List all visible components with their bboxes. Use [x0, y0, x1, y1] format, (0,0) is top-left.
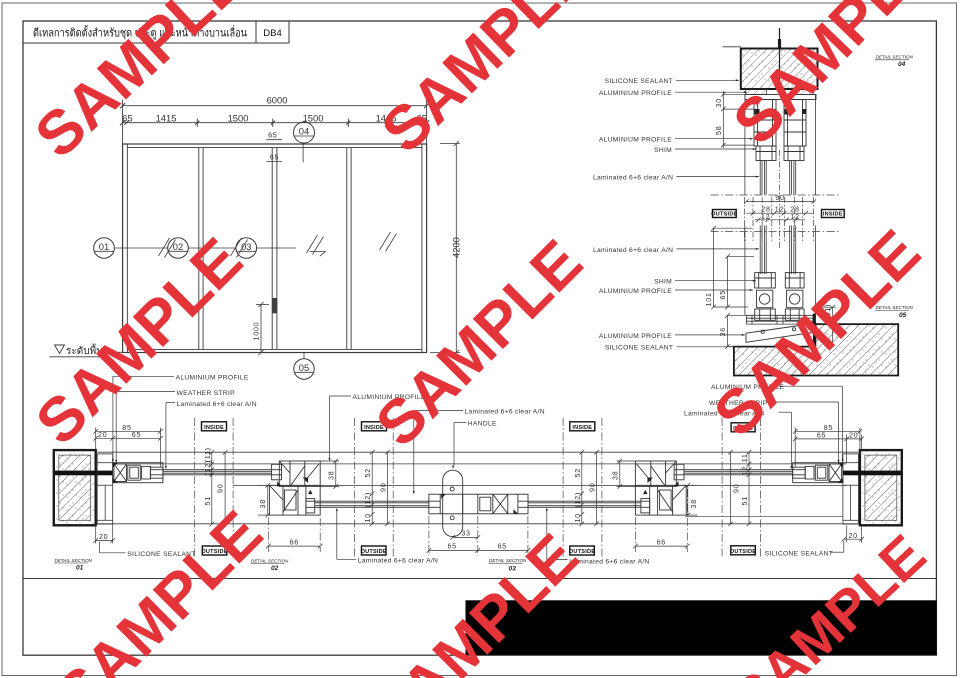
svg-text:65: 65 — [268, 130, 277, 139]
svg-text:Laminated 6+6 clear A/N: Laminated 6+6 clear A/N — [177, 401, 257, 408]
svg-text:05: 05 — [299, 362, 309, 373]
svg-text:1000: 1000 — [252, 322, 261, 341]
svg-text:65: 65 — [817, 431, 826, 440]
svg-text:ALUMINIUM PROFILE: ALUMINIUM PROFILE — [599, 90, 672, 97]
svg-text:65: 65 — [718, 290, 727, 299]
svg-text:20: 20 — [98, 430, 107, 439]
svg-text:(12): (12) — [363, 492, 372, 508]
svg-text:38: 38 — [689, 499, 698, 508]
svg-text:01: 01 — [99, 241, 109, 252]
svg-text:52: 52 — [363, 468, 372, 477]
svg-text:(12): (12) — [203, 460, 212, 476]
svg-text:65: 65 — [132, 430, 141, 439]
svg-text:DB4: DB4 — [263, 28, 281, 39]
svg-text:20: 20 — [99, 532, 108, 541]
svg-text:DETAIL SECTION: DETAIL SECTION — [55, 558, 93, 563]
svg-text:OUTSIDE: OUTSIDE — [730, 549, 756, 555]
svg-text:90: 90 — [775, 193, 784, 202]
svg-text:85: 85 — [122, 423, 131, 432]
svg-text:65: 65 — [447, 542, 456, 551]
svg-text:33: 33 — [461, 529, 470, 538]
svg-text:101: 101 — [704, 292, 713, 306]
svg-text:51: 51 — [203, 496, 212, 505]
svg-text:66: 66 — [657, 538, 666, 547]
svg-text:12: 12 — [761, 212, 770, 221]
svg-text:10: 10 — [573, 513, 582, 522]
svg-text:90: 90 — [732, 484, 741, 493]
svg-text:ALUMINIUM PROFILE: ALUMINIUM PROFILE — [599, 288, 672, 295]
svg-text:INSIDE: INSIDE — [823, 212, 843, 218]
svg-text:Laminated 6+6 clear A/N: Laminated 6+6 clear A/N — [358, 557, 438, 564]
svg-text:10: 10 — [363, 513, 372, 522]
svg-text:04: 04 — [898, 61, 906, 68]
svg-text:20: 20 — [848, 531, 857, 540]
svg-text:INSIDE: INSIDE — [204, 425, 224, 431]
svg-text:SILICONE SEALANT: SILICONE SEALANT — [605, 78, 673, 85]
svg-text:12: 12 — [790, 212, 799, 221]
svg-text:12: 12 — [775, 205, 784, 214]
svg-text:90: 90 — [216, 484, 225, 493]
svg-text:ALUMINIUM PROFILE: ALUMINIUM PROFILE — [599, 333, 672, 340]
svg-text:SILICONE SEALANT: SILICONE SEALANT — [765, 551, 833, 558]
svg-text:HANDLE: HANDLE — [468, 420, 497, 427]
svg-text:05: 05 — [899, 312, 907, 319]
svg-text:04: 04 — [299, 126, 309, 137]
svg-text:52: 52 — [573, 468, 582, 477]
svg-text:DETAIL SECTION: DETAIL SECTION — [876, 55, 914, 60]
svg-text:SILICONE SEALANT: SILICONE SEALANT — [605, 345, 673, 352]
svg-text:38: 38 — [326, 471, 335, 480]
svg-text:1500: 1500 — [228, 113, 249, 124]
svg-text:03: 03 — [241, 241, 251, 252]
svg-text:SHIM: SHIM — [654, 279, 672, 286]
svg-text:30: 30 — [714, 98, 723, 107]
svg-text:12: 12 — [740, 466, 749, 475]
svg-text:02: 02 — [271, 565, 279, 572]
svg-text:66: 66 — [290, 538, 299, 547]
svg-text:20: 20 — [849, 431, 858, 440]
svg-text:(12): (12) — [573, 492, 582, 508]
svg-text:1415: 1415 — [156, 113, 177, 124]
svg-text:ALUMINIUM PROFILE: ALUMINIUM PROFILE — [176, 374, 249, 381]
svg-text:Laminated 6+6 clear A/N: Laminated 6+6 clear A/N — [593, 247, 673, 254]
svg-text:90: 90 — [379, 483, 388, 492]
svg-text:65: 65 — [270, 153, 279, 162]
svg-text:4200: 4200 — [451, 237, 462, 258]
svg-text:OUTSIDE: OUTSIDE — [711, 212, 737, 218]
svg-text:WEATHER STRIP: WEATHER STRIP — [177, 390, 236, 397]
svg-text:51: 51 — [740, 496, 749, 505]
svg-text:38: 38 — [610, 471, 619, 480]
svg-text:INSIDE: INSIDE — [572, 425, 592, 431]
svg-text:65: 65 — [498, 542, 507, 551]
svg-text:Laminated 6+6 clear A/N: Laminated 6+6 clear A/N — [465, 408, 545, 415]
svg-text:ALUMINIUM PROFILE: ALUMINIUM PROFILE — [599, 137, 672, 144]
svg-text:58: 58 — [714, 126, 723, 135]
svg-text:11: 11 — [740, 453, 749, 462]
svg-text:6000: 6000 — [267, 95, 288, 106]
svg-text:01: 01 — [76, 565, 84, 572]
svg-text:90: 90 — [588, 483, 597, 492]
svg-text:38: 38 — [258, 499, 267, 508]
svg-text:Laminated 6+6 clear A/N: Laminated 6+6 clear A/N — [593, 175, 673, 182]
svg-text:OUTSIDE: OUTSIDE — [361, 549, 387, 555]
svg-text:SHIM: SHIM — [654, 147, 672, 154]
